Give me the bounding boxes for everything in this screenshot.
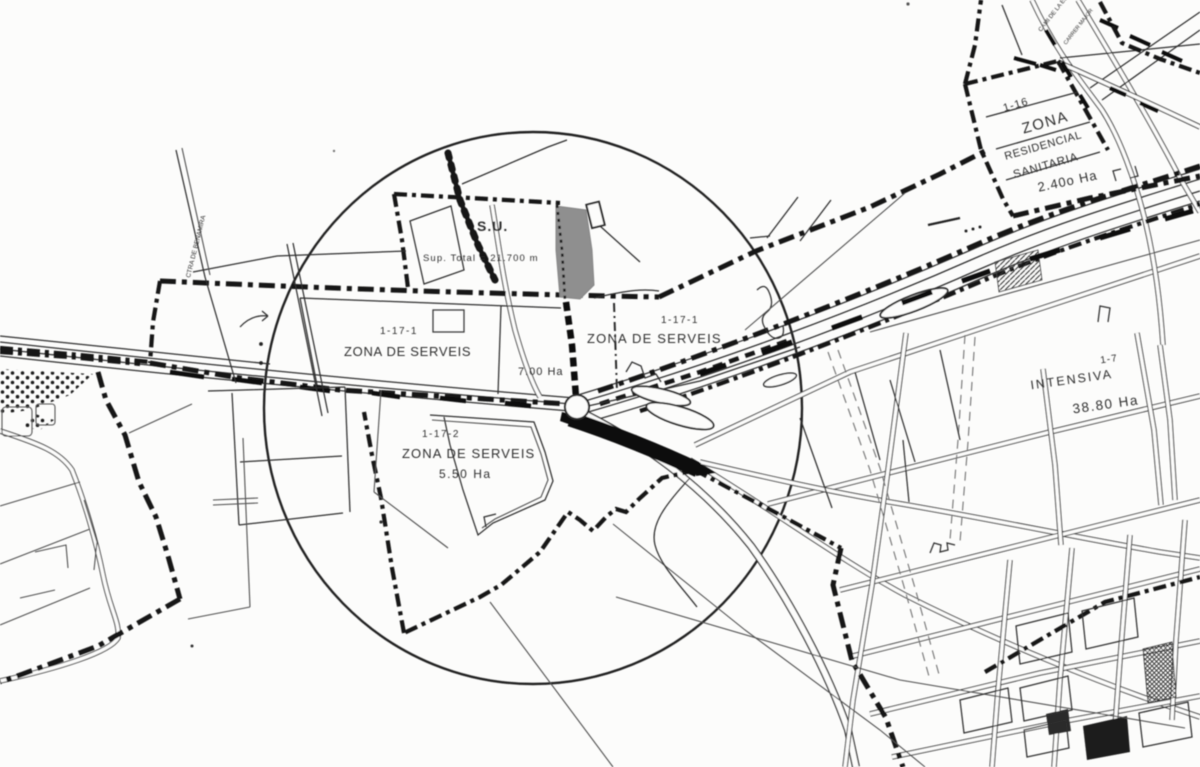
svg-text:1-17-1: 1-17-1 (380, 326, 418, 337)
svg-text:CARRER MAJOR: CARRER MAJOR (1063, 8, 1095, 46)
svg-text:ZONA DE SERVEIS: ZONA DE SERVEIS (344, 344, 471, 359)
svg-text:7.00 Ha: 7.00 Ha (518, 366, 564, 378)
svg-text:ZONA DE SERVEIS: ZONA DE SERVEIS (587, 331, 722, 346)
svg-text:1-17-1: 1-17-1 (661, 315, 699, 326)
svg-text:1-7: 1-7 (1100, 353, 1119, 366)
svg-text:Sup. Total = 21.700 m: Sup. Total = 21.700 m (423, 253, 539, 264)
svg-text:5.50 Ha: 5.50 Ha (439, 467, 492, 481)
svg-text:1-16: 1-16 (1002, 96, 1030, 115)
svg-text:ZONA DE SERVEIS: ZONA DE SERVEIS (402, 446, 535, 461)
svg-text:1-17-2: 1-17-2 (422, 429, 460, 440)
svg-text:S.U.: S.U. (477, 218, 508, 234)
